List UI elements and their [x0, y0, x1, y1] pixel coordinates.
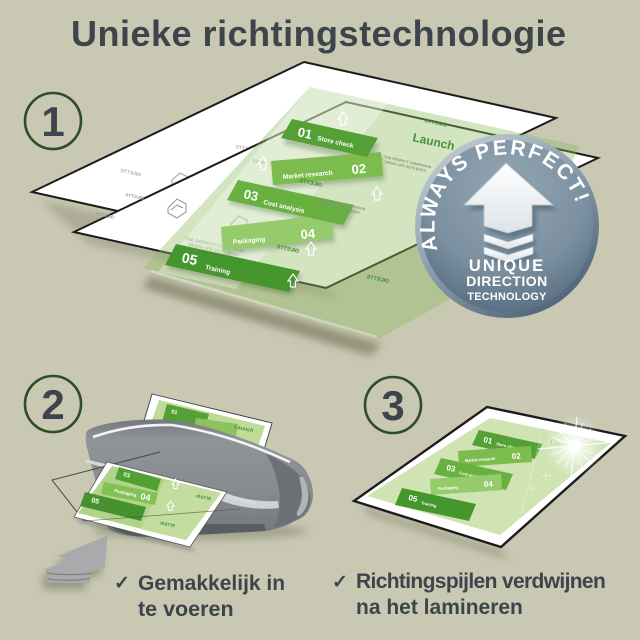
svg-text:02: 02: [512, 451, 522, 461]
svg-text:2: 2: [41, 381, 64, 428]
svg-text:04: 04: [300, 226, 316, 242]
svg-text:04: 04: [484, 479, 494, 489]
svg-text:DIRECTION: DIRECTION: [466, 273, 548, 289]
svg-text:TECHNOLOGY: TECHNOLOGY: [467, 291, 547, 303]
svg-text:na het lamineren: na het lamineren: [356, 596, 523, 619]
svg-text:✓: ✓: [114, 573, 130, 594]
svg-text:✓: ✓: [332, 572, 348, 593]
svg-text:Richtingspijlen verdwijnen: Richtingspijlen verdwijnen: [356, 570, 605, 593]
svg-text:3: 3: [381, 382, 404, 429]
svg-text:04: 04: [140, 491, 152, 503]
svg-text:Unieke richtingstechnologie: Unieke richtingstechnologie: [71, 13, 567, 54]
svg-text:Gemakkelijk in: Gemakkelijk in: [138, 572, 285, 595]
svg-text:te voeren: te voeren: [138, 597, 234, 621]
svg-text:02: 02: [351, 161, 367, 177]
svg-text:1: 1: [41, 98, 64, 145]
